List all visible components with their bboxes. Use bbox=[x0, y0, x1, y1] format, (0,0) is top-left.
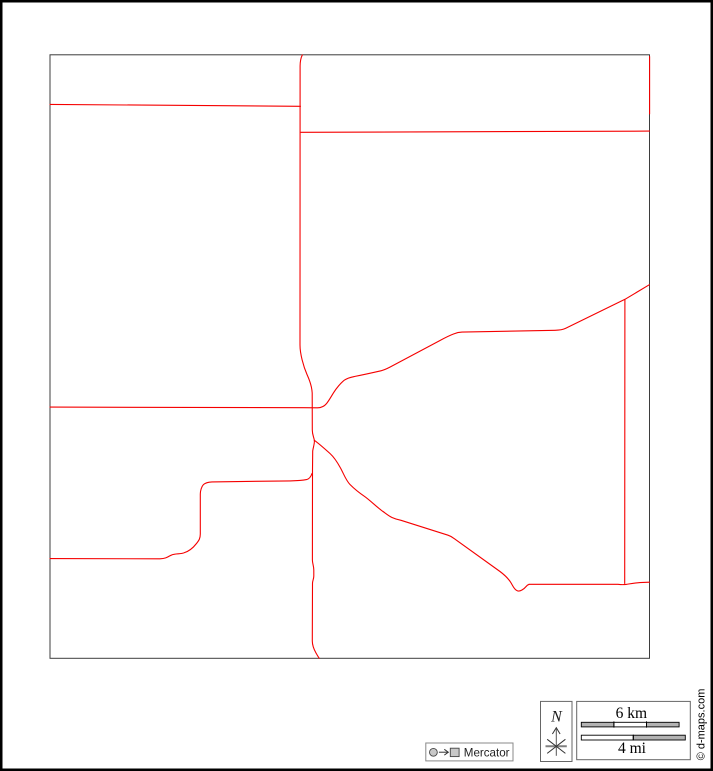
svg-text:Mercator: Mercator bbox=[464, 746, 510, 759]
svg-text:6 km: 6 km bbox=[616, 705, 647, 722]
svg-text:4 mi: 4 mi bbox=[618, 740, 647, 757]
svg-text:N: N bbox=[550, 709, 563, 726]
svg-text:© d-maps.com: © d-maps.com bbox=[695, 689, 707, 761]
